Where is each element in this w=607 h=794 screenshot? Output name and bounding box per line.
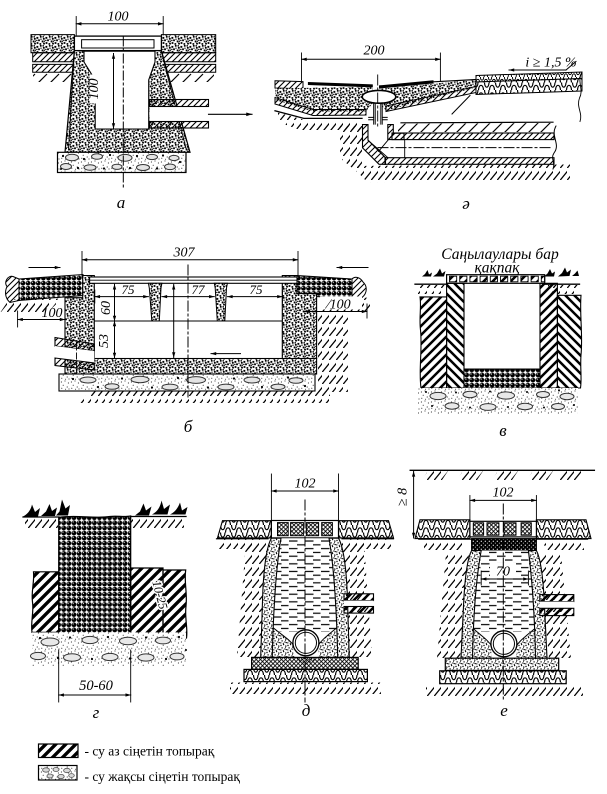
svg-text:i ≥ 1,5 %: i ≥ 1,5 % — [525, 56, 576, 71]
svg-text:100: 100 — [42, 306, 63, 321]
svg-text:307: 307 — [173, 246, 196, 261]
svg-text:200: 200 — [364, 44, 385, 59]
svg-text:қақпақ: қақпақ — [474, 260, 520, 277]
svg-text:- су аз сіңетін топырақ: - су аз сіңетін топырақ — [85, 744, 215, 759]
svg-text:100: 100 — [108, 10, 129, 25]
svg-text:г: г — [93, 703, 100, 722]
svg-text:75: 75 — [122, 282, 136, 297]
svg-text:77: 77 — [192, 282, 206, 297]
svg-text:102: 102 — [493, 486, 514, 501]
svg-text:е: е — [500, 701, 508, 720]
svg-text:б: б — [184, 417, 193, 436]
svg-text:50-60: 50-60 — [79, 678, 114, 694]
svg-text:102: 102 — [295, 477, 316, 492]
svg-text:75: 75 — [250, 282, 264, 297]
svg-text:∕100: ∕100 — [324, 298, 350, 313]
svg-text:100: 100 — [87, 79, 102, 100]
svg-text:60: 60 — [99, 301, 114, 315]
svg-text:- су жақсы сіңетін топырақ: - су жақсы сіңетін топырақ — [85, 769, 241, 784]
svg-text:а: а — [117, 193, 126, 212]
svg-text:ә: ә — [462, 194, 470, 213]
svg-text:≥ 8: ≥ 8 — [396, 488, 411, 506]
svg-text:в: в — [499, 421, 507, 440]
svg-text:д: д — [302, 701, 311, 720]
svg-text:53: 53 — [97, 334, 112, 348]
